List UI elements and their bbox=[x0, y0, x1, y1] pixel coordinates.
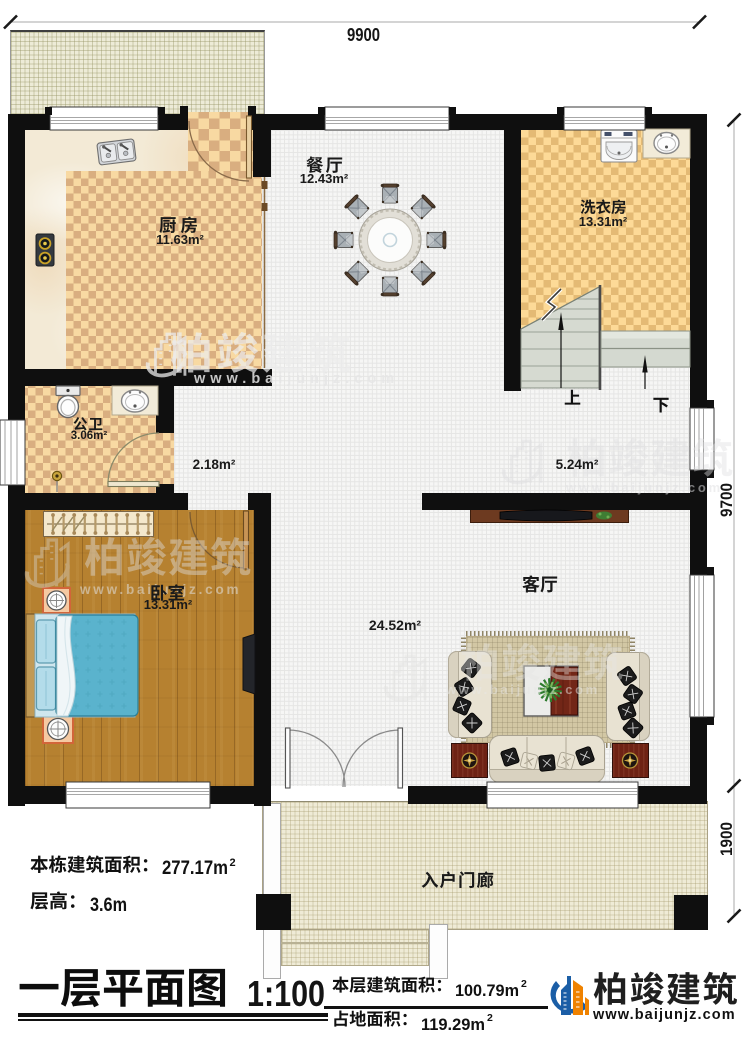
svg-text:9900: 9900 bbox=[347, 25, 380, 45]
svg-text:1:100: 1:100 bbox=[247, 973, 325, 1014]
svg-text:100.79m: 100.79m bbox=[455, 981, 519, 1000]
svg-text:www.baijunjz.com: www.baijunjz.com bbox=[193, 371, 399, 387]
svg-text:www.baijunjz.com: www.baijunjz.com bbox=[565, 480, 723, 495]
svg-text:119.29m: 119.29m bbox=[421, 1015, 485, 1034]
svg-text:www.baijunjz.com: www.baijunjz.com bbox=[445, 682, 600, 697]
svg-text:2: 2 bbox=[487, 1012, 493, 1024]
svg-text:www.baijunjz.com: www.baijunjz.com bbox=[592, 1007, 736, 1023]
svg-text:www.baijunjz.com: www.baijunjz.com bbox=[79, 582, 241, 597]
svg-text:1900: 1900 bbox=[717, 822, 736, 856]
svg-text:2: 2 bbox=[230, 857, 236, 869]
svg-text:2: 2 bbox=[521, 978, 527, 990]
svg-text:3.6m: 3.6m bbox=[90, 895, 127, 916]
svg-text:277.17m: 277.17m bbox=[162, 858, 228, 879]
